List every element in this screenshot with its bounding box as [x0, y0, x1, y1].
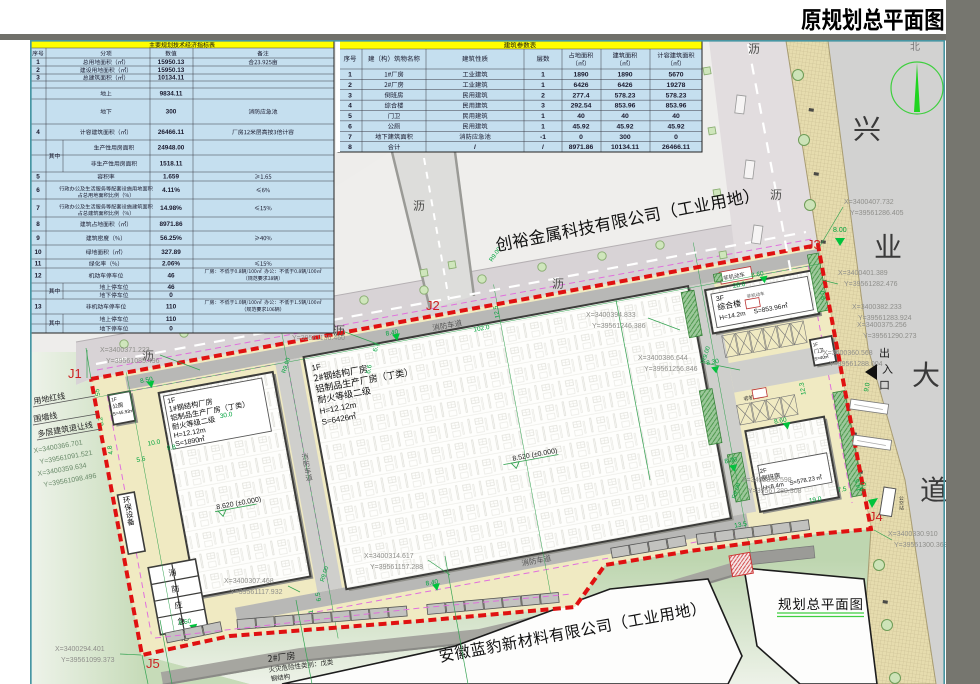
svg-text:1.659: 1.659 [163, 174, 179, 181]
svg-text:1F: 1F [111, 397, 118, 404]
svg-text:40: 40 [621, 113, 629, 120]
svg-text:Y=39561300.363: Y=39561300.363 [894, 542, 948, 549]
svg-text:300: 300 [166, 109, 177, 116]
svg-text:X=3400314.617: X=3400314.617 [364, 553, 414, 560]
svg-text:8.00: 8.00 [833, 227, 847, 234]
svg-text:6426: 6426 [573, 82, 588, 89]
svg-text:578.23: 578.23 [666, 92, 687, 99]
svg-text:Y=39561286.405: Y=39561286.405 [850, 210, 904, 217]
svg-text:8971.86: 8971.86 [159, 221, 183, 228]
svg-text:-1: -1 [540, 134, 546, 141]
svg-text:X=3400371.223: X=3400371.223 [100, 347, 150, 354]
svg-text:0: 0 [169, 292, 173, 299]
svg-text:11: 11 [35, 261, 42, 268]
svg-text:45.92: 45.92 [667, 123, 684, 130]
svg-text:4: 4 [36, 129, 40, 136]
svg-text:Y=39561289.308: Y=39561289.308 [748, 488, 802, 495]
svg-text:Y=39561099.373: Y=39561099.373 [61, 657, 115, 664]
svg-text:56.25%: 56.25% [160, 235, 182, 242]
svg-text:6426: 6426 [617, 82, 632, 89]
svg-text:4: 4 [348, 103, 352, 110]
svg-text:1890: 1890 [573, 72, 588, 79]
svg-text:5670: 5670 [668, 72, 683, 79]
svg-text:J5: J5 [146, 656, 160, 671]
svg-text:12: 12 [34, 273, 42, 280]
svg-text:0: 0 [674, 134, 678, 141]
svg-text:Y=39561085.496: Y=39561085.496 [106, 358, 160, 365]
svg-text:1518.11: 1518.11 [160, 161, 183, 168]
svg-text:2: 2 [541, 92, 545, 99]
svg-text:4.11%: 4.11% [162, 187, 180, 194]
svg-text:3: 3 [541, 103, 545, 110]
svg-text:/: / [474, 144, 476, 151]
svg-text:1890: 1890 [617, 72, 632, 79]
svg-text:24948.00: 24948.00 [158, 145, 185, 152]
svg-text:Y=39561157.288: Y=39561157.288 [370, 564, 423, 571]
svg-text:1F: 1F [311, 362, 322, 373]
svg-text:J2: J2 [426, 298, 440, 313]
svg-text:Y=39561136.460: Y=39561136.460 [292, 335, 345, 342]
svg-text:40: 40 [577, 113, 585, 120]
svg-text:45.92: 45.92 [616, 123, 633, 130]
svg-text:1: 1 [36, 59, 40, 66]
svg-text:853.96: 853.96 [615, 103, 636, 110]
svg-text:X=3400401.389: X=3400401.389 [838, 270, 888, 277]
svg-text:1: 1 [348, 72, 352, 79]
svg-text:X=3400330.910: X=3400330.910 [888, 531, 938, 538]
svg-text:2: 2 [348, 82, 352, 89]
svg-text:X=3400407.732: X=3400407.732 [844, 199, 894, 206]
svg-text:8971.86: 8971.86 [569, 144, 594, 151]
svg-text:J3: J3 [807, 237, 821, 252]
svg-text:292.54: 292.54 [571, 103, 592, 110]
svg-text:Y=39561290.273: Y=39561290.273 [863, 333, 917, 340]
svg-text:X=3400294.401: X=3400294.401 [55, 646, 105, 653]
svg-text:Y=39561283.924: Y=39561283.924 [858, 315, 912, 322]
svg-text:1F: 1F [167, 397, 176, 405]
svg-text:26466.11: 26466.11 [662, 144, 690, 151]
svg-text:2.06%: 2.06% [162, 261, 180, 268]
svg-text:45.92: 45.92 [572, 123, 589, 130]
svg-text:10134.11: 10134.11 [158, 75, 185, 82]
svg-text:X=3400338.598: X=3400338.598 [742, 477, 792, 484]
svg-text:26466.11: 26466.11 [158, 129, 185, 136]
svg-text:1: 1 [541, 123, 545, 130]
svg-text:/: / [542, 144, 544, 151]
svg-text:578.23: 578.23 [615, 92, 636, 99]
svg-text:10: 10 [34, 249, 42, 256]
svg-text:1: 1 [541, 113, 545, 120]
svg-text:10134.11: 10134.11 [611, 144, 639, 151]
svg-text:14.98%: 14.98% [160, 205, 182, 212]
svg-text:8: 8 [36, 221, 40, 228]
svg-text:X=3400360.568: X=3400360.568 [823, 350, 873, 357]
svg-text:110: 110 [166, 316, 177, 323]
svg-text:277.4: 277.4 [572, 92, 589, 99]
svg-text:0: 0 [579, 134, 583, 141]
svg-text:6: 6 [348, 123, 352, 130]
svg-text:Y=39561256.846: Y=39561256.846 [644, 366, 698, 373]
svg-text:5: 5 [36, 174, 40, 181]
svg-text:300: 300 [619, 134, 631, 141]
svg-text:Y=39561117.932: Y=39561117.932 [230, 589, 283, 596]
svg-text:Y=39561282.476: Y=39561282.476 [844, 281, 898, 288]
svg-text:46: 46 [167, 284, 175, 291]
svg-text:15950.13: 15950.13 [158, 67, 185, 74]
svg-text:X=3400382.233: X=3400382.233 [852, 304, 902, 311]
svg-text:J1: J1 [68, 366, 82, 381]
svg-text:8: 8 [348, 144, 352, 151]
svg-text:2: 2 [36, 67, 40, 74]
svg-text:1: 1 [541, 72, 545, 79]
svg-text:9: 9 [36, 235, 40, 242]
svg-text:X=3400394.833: X=3400394.833 [586, 312, 636, 319]
svg-text:5: 5 [348, 113, 352, 120]
svg-text:1: 1 [541, 82, 545, 89]
svg-text:X=3400375.256: X=3400375.256 [857, 322, 907, 329]
svg-text:9834.11: 9834.11 [160, 91, 183, 98]
svg-text:40: 40 [672, 113, 680, 120]
svg-text:853.96: 853.96 [666, 103, 687, 110]
svg-text:13: 13 [34, 304, 42, 311]
svg-text:19278: 19278 [667, 82, 686, 89]
svg-text:7: 7 [348, 134, 352, 141]
svg-text:15950.13: 15950.13 [158, 59, 185, 66]
svg-text:7: 7 [36, 205, 40, 212]
svg-text:46: 46 [167, 273, 175, 280]
svg-text:110: 110 [166, 304, 177, 311]
svg-text:3F: 3F [715, 295, 724, 303]
svg-text:X=3400386.644: X=3400386.644 [638, 355, 688, 362]
svg-text:3: 3 [36, 75, 40, 82]
svg-text:0: 0 [169, 326, 173, 333]
svg-text:327.89: 327.89 [161, 249, 181, 256]
svg-text:3: 3 [348, 92, 352, 99]
svg-text:Y=39561246.386: Y=39561246.386 [592, 323, 646, 330]
svg-text:X=3400307.468: X=3400307.468 [224, 578, 274, 585]
svg-text:6: 6 [36, 187, 40, 194]
